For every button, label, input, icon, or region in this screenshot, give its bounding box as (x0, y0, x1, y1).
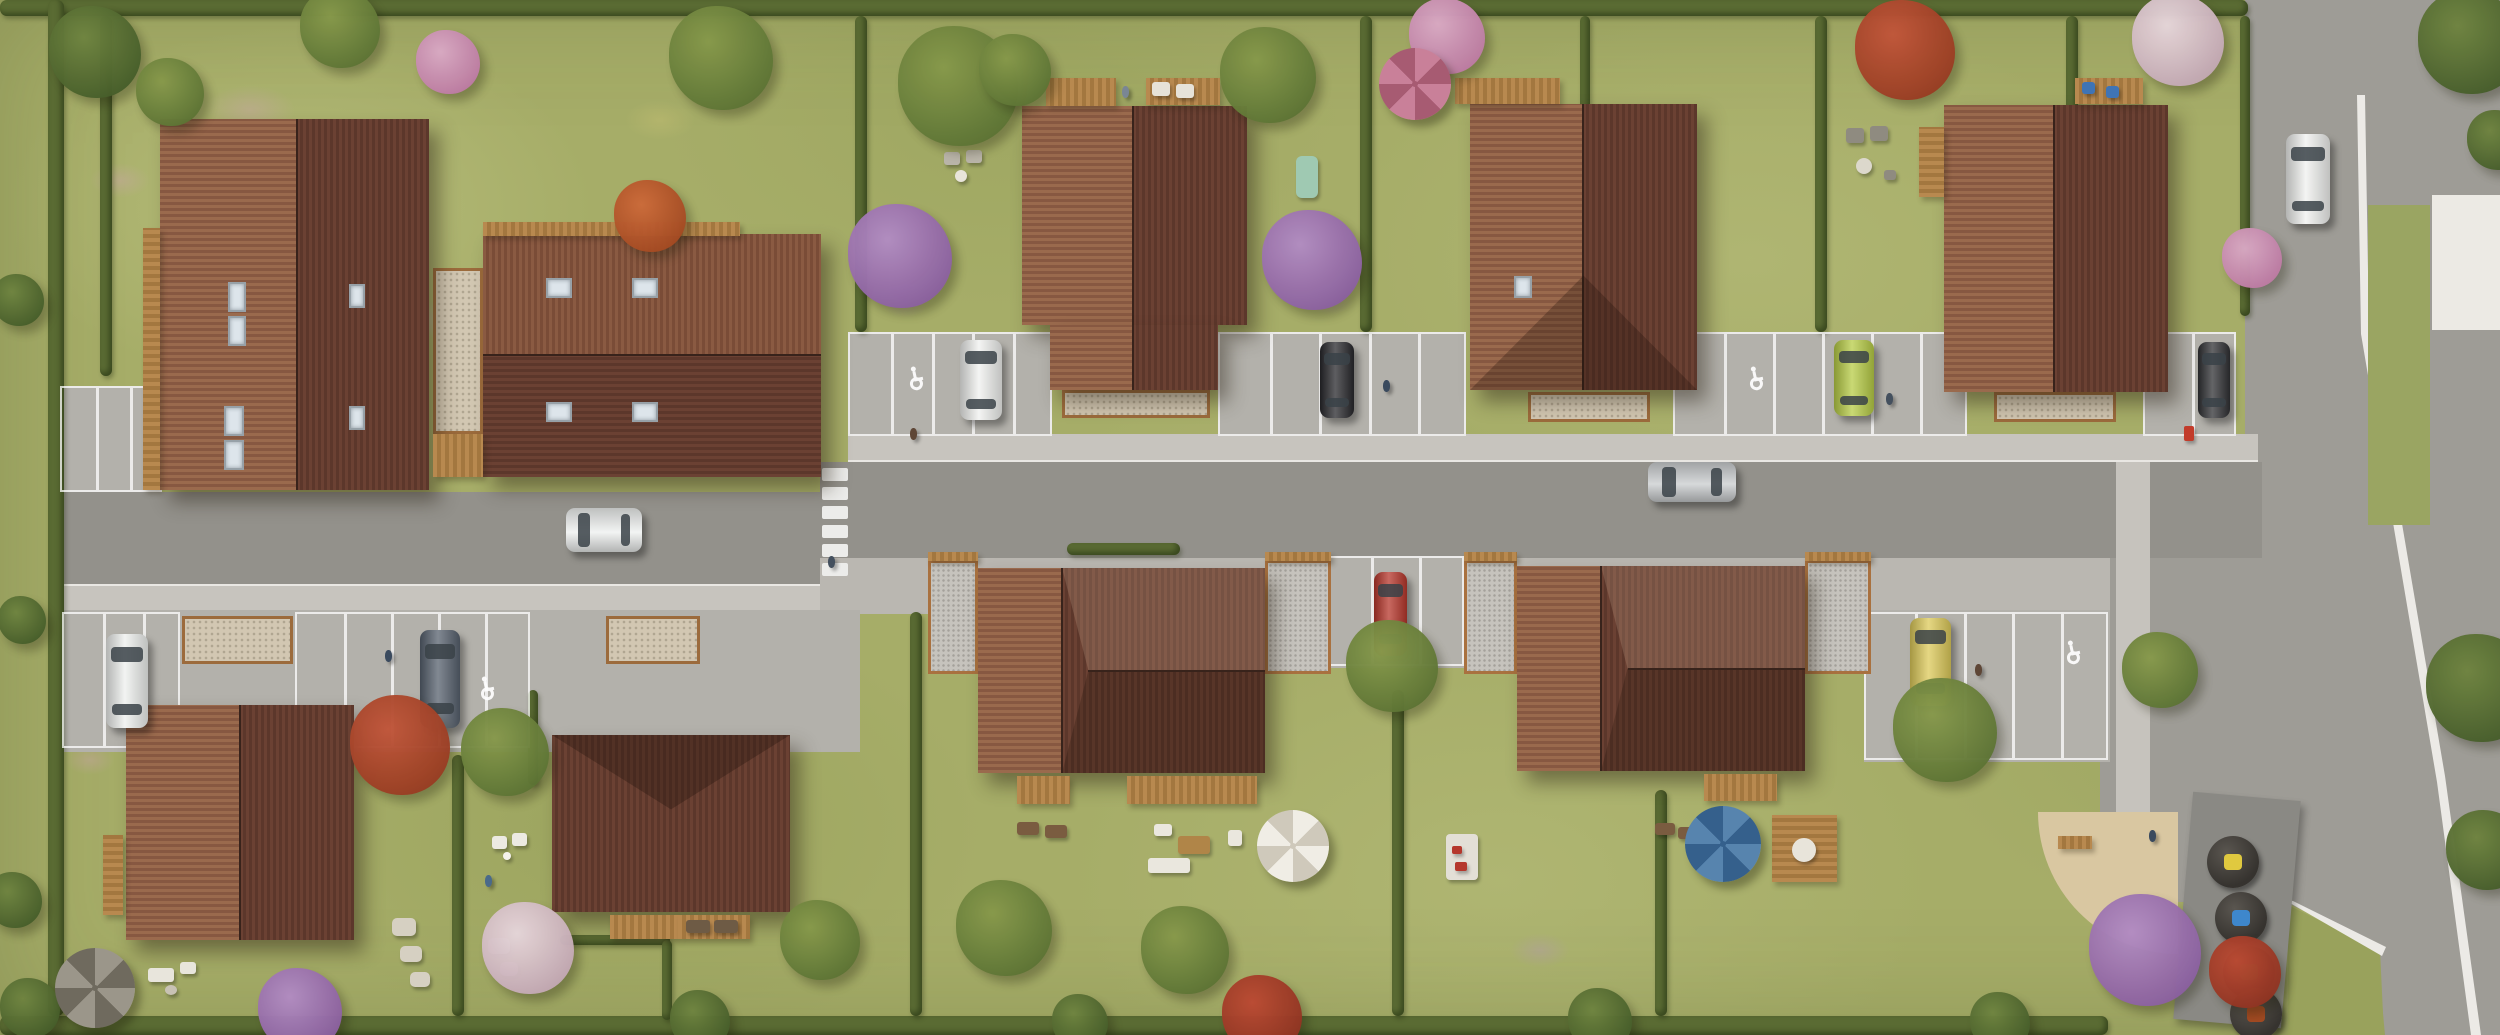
person (2149, 830, 2156, 842)
wood-deck (1046, 78, 1116, 106)
garden-furniture (410, 972, 430, 987)
gravel-terrace (1062, 390, 1210, 418)
garden-furniture (1045, 825, 1067, 838)
roof-half-light (126, 705, 240, 940)
house-south-middle-2 (1517, 566, 1805, 771)
parking-bay-divider (891, 334, 894, 434)
tree-green (1220, 27, 1316, 123)
garden-furniture (955, 170, 967, 182)
garden-furniture (966, 150, 982, 163)
tree-dark (0, 596, 46, 644)
person (385, 650, 392, 662)
collective-building-b (483, 234, 821, 477)
parking-bay-divider (932, 334, 935, 434)
roof-half-dark (2054, 105, 2168, 392)
parking-bay-divider (1369, 334, 1372, 434)
flower-patch (625, 100, 695, 140)
person (485, 875, 492, 887)
garden-furniture (1176, 84, 1194, 98)
waste-bin-lid (2224, 854, 2242, 870)
roof-ridge (296, 119, 298, 490)
parking-bay-divider (1724, 334, 1727, 434)
hedge (1067, 543, 1180, 555)
gravel-terrace (1528, 392, 1650, 422)
wood-deck (143, 228, 160, 490)
garden-furniture (148, 968, 174, 982)
hedge (1360, 16, 1372, 332)
rear-window (1840, 396, 1869, 405)
main-road-west (48, 492, 822, 584)
gravel-terrace (1994, 392, 2116, 422)
skylight (546, 278, 572, 298)
car-white-parked-street-east (2286, 134, 2330, 224)
crosswalk-stripe (822, 487, 848, 500)
parking-bay-divider (2192, 334, 2195, 434)
garden-furniture (492, 836, 507, 849)
garage-pad (1464, 560, 1517, 674)
garden-furniture (2184, 426, 2194, 441)
hedge (1815, 16, 1827, 332)
house-south-middle-1 (978, 568, 1265, 773)
rear-window (1711, 468, 1722, 497)
tree-purple (848, 204, 952, 308)
tree-redorange (614, 180, 686, 252)
garden-furniture (1455, 862, 1467, 871)
hedge (452, 755, 464, 1016)
garage-pad (1265, 560, 1331, 674)
tree-dark (1970, 992, 2030, 1035)
roof-half-dark (1133, 106, 1247, 325)
tree-green (2122, 632, 2198, 708)
skylight (349, 284, 365, 308)
wood-deck (483, 222, 740, 236)
windshield (1662, 467, 1676, 497)
garden-furniture (1655, 823, 1675, 835)
house-southwest-1 (126, 705, 354, 940)
crosswalk-stripe (822, 506, 848, 519)
garage-pad (1805, 560, 1871, 674)
tree-green (956, 880, 1052, 976)
garden-furniture (1178, 836, 1210, 854)
roof-ridge (239, 705, 241, 940)
sidewalk-north (848, 434, 2258, 462)
garden-furniture (400, 946, 422, 962)
car-white-parked-southwest (106, 634, 148, 728)
driveway-apron-white (2432, 195, 2500, 330)
windshield (2291, 147, 2324, 161)
wood-deck (1017, 776, 1070, 804)
person (1383, 380, 1390, 392)
garden-furniture (714, 920, 738, 933)
skylight (224, 406, 244, 436)
roof-ridge-v (1061, 568, 1063, 773)
roof-half-light (1050, 325, 1133, 390)
garden-furniture (503, 852, 511, 860)
parking-bay-divider (1013, 334, 1016, 434)
parasol-blue (1685, 806, 1761, 882)
garden-furniture (1846, 128, 1864, 143)
tree-dark (1052, 994, 1108, 1035)
garden-furniture (1152, 82, 1170, 96)
garden-furniture (2082, 82, 2095, 94)
roof-half-dark (1133, 325, 1218, 390)
wood-deck (1455, 78, 1560, 104)
waste-bin-lid (2232, 910, 2250, 926)
tree-pinkwhite (2132, 0, 2224, 86)
skylight (228, 316, 246, 346)
parking-bay-divider (1822, 334, 1825, 434)
car-lime-parked-row-c (1834, 340, 1874, 416)
roof-half-light (1944, 105, 2054, 392)
parasol-pole (1412, 81, 1418, 87)
wood-deck (610, 915, 678, 939)
wood-deck (1704, 774, 1777, 801)
garage-pad (928, 560, 978, 674)
garden-furniture (944, 152, 960, 165)
rear-window (2202, 398, 2225, 407)
wood-deck (1805, 552, 1871, 561)
windshield (1324, 353, 1350, 365)
house-north-2 (1470, 104, 1697, 390)
tree-green (1141, 906, 1229, 994)
collective-building-a (160, 119, 429, 490)
parasol-gray (55, 948, 135, 1028)
garden-furniture (1296, 156, 1318, 198)
roof-ridge (2053, 105, 2055, 392)
parasol-white (1257, 810, 1329, 882)
house-southwest-2 (552, 735, 790, 912)
skylight (632, 402, 658, 422)
wood-deck (1127, 776, 1257, 804)
roof-strip-light (978, 568, 1062, 773)
tree-green (979, 34, 1051, 106)
sidewalk-north-line (848, 460, 2258, 462)
gravel-terrace (182, 616, 293, 664)
roof-ridge (1628, 668, 1805, 670)
car-black-parked-row-d (2198, 342, 2230, 418)
tree-purple (258, 968, 342, 1035)
garden-furniture (165, 985, 177, 995)
tree-purple (1262, 210, 1362, 310)
tree-green (461, 708, 549, 796)
roof-hip (1062, 568, 1265, 773)
tree-pink (2222, 228, 2282, 288)
parking-bay-divider (2012, 614, 2015, 758)
garden-furniture (180, 962, 196, 974)
wood-deck (1919, 127, 1944, 197)
tree-green (136, 58, 204, 126)
windshield (965, 351, 997, 364)
rear-window (112, 704, 142, 715)
roof-half-dark (240, 705, 354, 940)
roof-ridge (1132, 106, 1134, 325)
wood-deck (2058, 836, 2092, 849)
tree-green (669, 6, 773, 110)
house-north-1 (1022, 106, 1247, 325)
tree-dark (0, 872, 42, 928)
windshield (2202, 353, 2226, 365)
garden-furniture (1017, 822, 1039, 835)
skylight (224, 440, 244, 470)
rear-window (621, 514, 630, 546)
tree-pink (416, 30, 480, 94)
rear-window (966, 399, 996, 409)
main-road-east (820, 462, 2262, 558)
hedge (910, 612, 922, 1016)
tree-redflower (1222, 975, 1302, 1035)
garden-furniture (686, 920, 710, 933)
roof-ridge (1132, 325, 1134, 390)
windshield (578, 513, 590, 546)
garden-furniture (1870, 126, 1888, 141)
parking-bay-divider (1270, 334, 1273, 434)
garden-furniture (1446, 834, 1478, 880)
masterplan-aerial-view (0, 0, 2500, 1035)
parking-bay-divider (1920, 334, 1923, 434)
person (1975, 664, 1982, 676)
parking-bay-divider (96, 388, 99, 490)
crosswalk-stripe (822, 544, 848, 557)
skylight (228, 282, 246, 312)
garden-furniture (1452, 846, 1462, 854)
rear-window (1325, 398, 1349, 407)
skylight (632, 278, 658, 298)
tree-redflower (2209, 936, 2281, 1008)
windshield (111, 647, 143, 662)
parasol-pole (92, 985, 98, 991)
parking-bay-divider (130, 388, 133, 490)
garden-furniture (392, 918, 416, 936)
parking-bay-row (848, 332, 1052, 436)
parking-bay-divider (1418, 334, 1421, 434)
roof-hip (1601, 566, 1805, 771)
rear-window (2292, 201, 2324, 212)
garden-furniture (1148, 858, 1190, 873)
tree-dark (1568, 988, 1632, 1035)
windshield (1915, 630, 1946, 644)
person (1886, 393, 1893, 405)
roof-half-light (1022, 106, 1133, 325)
parasol-pink (1379, 48, 1451, 120)
skylight (546, 402, 572, 422)
skylight (1514, 276, 1532, 298)
flower-patch (90, 163, 150, 198)
garden-furniture (2106, 86, 2119, 98)
crosswalk-stripe (822, 563, 848, 576)
crosswalk-stripe (822, 525, 848, 538)
wood-deck (928, 552, 978, 561)
garden-furniture (1154, 824, 1172, 836)
tree-dark (0, 274, 44, 326)
tree-dark (49, 6, 141, 98)
tree-dark (670, 990, 730, 1035)
car-black-parked-row-b (1320, 342, 1354, 418)
parking-bay-divider (1773, 334, 1776, 434)
parking-bay-row (1673, 332, 1967, 436)
garden-furniture (1228, 830, 1242, 846)
garden-furniture (1884, 170, 1896, 180)
car-white-driving-west (566, 508, 642, 552)
roof-ridge (1088, 670, 1265, 672)
sidewalk-south-line (48, 584, 824, 586)
waste-bin-lid (2247, 1006, 2265, 1022)
wood-deck (1265, 552, 1331, 561)
car-silver-driving-east (1648, 462, 1736, 502)
parasol-pole (1290, 843, 1296, 849)
garden-furniture (512, 833, 527, 846)
garden-furniture (1792, 838, 1816, 862)
wood-deck (1464, 552, 1517, 561)
house-north-1-wing (1050, 325, 1218, 390)
sidewalk-south (48, 584, 824, 610)
skylight (349, 406, 365, 430)
crosswalk-stripe (822, 468, 848, 481)
tree-pinkwhite (482, 902, 574, 994)
hedge (1392, 690, 1404, 1016)
person (828, 556, 835, 568)
roof-ridge-v (1600, 566, 1602, 771)
gravel-terrace (433, 268, 483, 434)
person (1122, 86, 1129, 98)
flower-patch (1510, 933, 1570, 968)
parking-bay-divider (2061, 614, 2064, 758)
windshield (1839, 351, 1869, 363)
tree-green (1346, 620, 1438, 712)
garden-furniture (1856, 158, 1872, 174)
tree-green (300, 0, 380, 68)
person (910, 428, 917, 440)
windshield (1378, 584, 1403, 597)
hedge (48, 0, 64, 1016)
street-east-verge (2368, 205, 2430, 525)
windshield (425, 644, 455, 660)
wood-deck (433, 434, 483, 477)
parasol-pole (1720, 841, 1726, 847)
car-white-parked-row-a (960, 340, 1002, 420)
roof-strip-light (1517, 566, 1601, 771)
roof-ridge (483, 354, 821, 356)
gravel-terrace (606, 616, 700, 664)
tree-green (780, 900, 860, 980)
wood-deck (103, 835, 123, 915)
house-north-3 (1944, 105, 2168, 392)
